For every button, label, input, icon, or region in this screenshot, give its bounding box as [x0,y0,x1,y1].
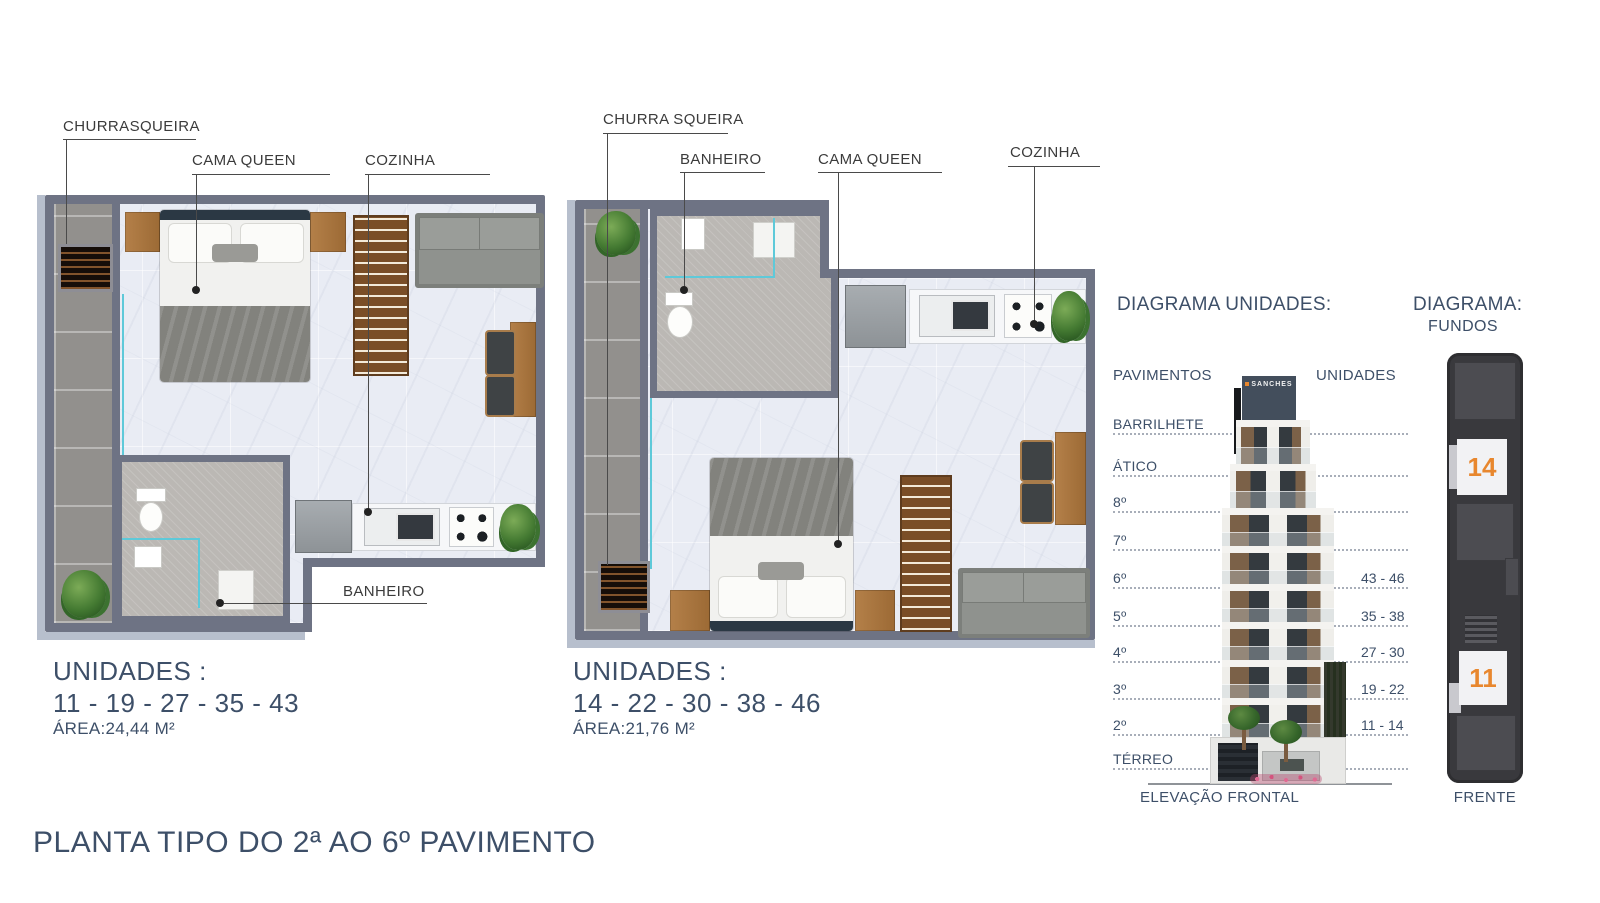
floor-units: 43 - 46 [1361,570,1405,586]
sign-brand: SANCHES [1251,381,1292,388]
plan1-units-list: 11 - 19 - 27 - 35 - 43 [53,688,299,719]
keyplan-title: DIAGRAMA: [1413,294,1522,316]
bed-blanket [710,458,853,536]
floor-label: BARRILHETE [1113,416,1204,432]
leader-line [818,172,942,173]
building-elevation: SANCHES [1210,376,1346,784]
sofa-icon [958,568,1090,638]
label-cama-queen: CAMA QUEEN [818,151,922,168]
leader-line [684,172,685,288]
leader-line [838,172,839,542]
leader-line [196,174,197,288]
floorplan-unit-14 [575,200,1095,640]
floor-units: 27 - 30 [1361,644,1405,660]
leader-line [63,139,196,140]
keyplan-stairs [1465,615,1497,643]
chair-icon [485,330,516,376]
nightstand [310,212,346,252]
leader-line [224,603,427,604]
leader-dot [192,286,200,294]
barbecue-grill-icon [598,561,650,613]
fridge-icon [295,500,352,553]
leader-dot [364,508,372,516]
leader-dot [834,540,842,548]
queen-bed-icon [160,210,310,382]
unit-number-bottom: 11 [1469,663,1497,694]
label-churrasqueira: CHURRASQUEIRA [63,118,200,135]
pipe-line [665,276,775,278]
toilet-icon [665,292,693,306]
barbecue-grill-icon [58,244,113,292]
queen-bed-icon [710,458,853,631]
highlighted-unit-14: 14 [1457,439,1507,495]
exterior-band [37,195,45,640]
pillow [786,576,846,618]
building-sign: SANCHES [1242,376,1296,420]
floor-units: 11 - 14 [1361,717,1404,733]
floor-label: 2º [1113,717,1127,733]
building-floor [1222,508,1334,546]
plan2-units-list: 14 - 22 - 30 - 38 - 46 [573,688,821,719]
sofa-cushion [479,217,540,250]
keyplan-room [1456,503,1514,561]
label-cozinha: COZINHA [1010,144,1080,161]
label-cozinha: COZINHA [365,152,435,169]
pipe-line [773,218,775,278]
plan2-cutout [820,200,1095,278]
building-floor [1222,584,1334,622]
bathroom [115,455,290,623]
keyplan-room [1454,362,1516,420]
sofa-cushion [1023,572,1086,603]
plant-icon [62,570,106,618]
bathroom-sink-icon [134,546,162,568]
fridge-icon [845,285,906,348]
exterior-band [37,632,305,640]
stove-icon [1004,294,1052,338]
chair-icon [1020,482,1054,524]
floor-label: 7º [1113,532,1127,548]
nightstand [670,590,710,631]
nightstand [855,590,895,631]
pillow [718,576,778,618]
leader-dot [216,599,224,607]
unit-number-top: 14 [1468,452,1497,483]
leader-dot [680,286,688,294]
exterior-band [567,640,1095,648]
bed-headboard [710,621,853,631]
floor-label: 4º [1113,644,1127,660]
key-plan-fundos: 14 11 [1447,353,1523,783]
leader-line [1034,166,1035,322]
toilet-icon [136,488,166,502]
floor-label: ÁTICO [1113,458,1157,474]
page: CHURRASQUEIRA CAMA QUEEN COZINHA BANHEIR… [0,0,1600,903]
plan2-area: ÁREA:21,76 M² [573,719,695,739]
elevation-caption: ELEVAÇÃO FRONTAL [1140,789,1299,806]
plant-icon [1052,291,1086,341]
toilet-bowl [667,306,693,338]
pipe-line [122,538,200,540]
kitchen-sink-icon [364,508,440,546]
exterior-band [567,200,575,648]
label-cama-queen: CAMA QUEEN [192,152,296,169]
page-title: PLANTA TIPO DO 2ª AO 6º PAVIMENTO [33,826,596,860]
bed-cushion [212,244,258,262]
leader-line [368,174,369,510]
bathroom [650,209,838,398]
building-floor [1236,420,1310,464]
keyplan-subtitle: FUNDOS [1413,318,1513,336]
chair-icon [485,375,516,417]
plan1-units-title: UNIDADES : [53,656,207,687]
kitchen-sink-icon [919,295,995,337]
highlighted-unit-11: 11 [1459,651,1507,705]
keyplan-caption: FRENTE [1447,789,1523,806]
toilet-bowl [139,502,163,532]
floorplan-unit-11 [45,195,545,632]
floor-label: 6º [1113,570,1127,586]
sink-basin [396,513,436,541]
sofa-cushion [419,217,480,250]
bed-headboard [160,210,310,220]
nightstand [125,212,160,252]
building-floor [1230,464,1316,508]
sofa-icon [415,213,544,288]
wood-shelf-icon [353,215,409,376]
label-banheiro: BANHEIRO [343,583,425,600]
ground-floor [1210,737,1346,784]
chair-icon [1020,440,1054,482]
building-floor [1222,660,1334,698]
floor-label: 8º [1113,494,1127,510]
desk-icon [1055,432,1086,525]
leader-dot [1030,320,1038,328]
keyplan-room [1456,715,1516,771]
floor-label: 5º [1113,608,1127,624]
leader-line [66,139,67,244]
label-churrasqueira: CHURRA SQUEIRA [603,111,744,128]
leader-line [1008,166,1100,167]
label-banheiro: BANHEIRO [680,151,762,168]
leader-line [680,172,765,173]
plan2-units-title: UNIDADES : [573,656,727,687]
keyplan-room [1505,558,1519,596]
sign-logo-square [1245,382,1249,386]
sofa-cushion [962,572,1025,603]
leader-line [192,174,330,175]
wood-shelf-icon [900,475,952,632]
plan1-area: ÁREA:24,44 M² [53,719,175,739]
stove-icon [449,507,494,547]
floor-label: TÉRREO [1113,751,1173,767]
leader-line [365,174,490,175]
floor-label: 3º [1113,681,1127,697]
floor-units: 19 - 22 [1361,681,1405,697]
bed-blanket [160,306,310,382]
building-floor [1222,546,1334,584]
plant-icon [596,211,636,255]
palm-tree-crown [1270,720,1302,744]
floor-units: 35 - 38 [1361,608,1405,624]
diagram-title: DIAGRAMA UNIDADES: [1117,294,1331,316]
leader-line [603,133,728,134]
pipe-line [198,538,200,608]
bed-cushion [758,562,804,580]
flower-bed [1250,774,1322,784]
palm-tree-crown [1228,706,1260,730]
leader-line [607,133,608,565]
building-floor [1222,622,1334,660]
plant-icon [500,504,536,550]
sink-basin [951,300,991,331]
sign-text: SANCHES [1245,381,1292,388]
